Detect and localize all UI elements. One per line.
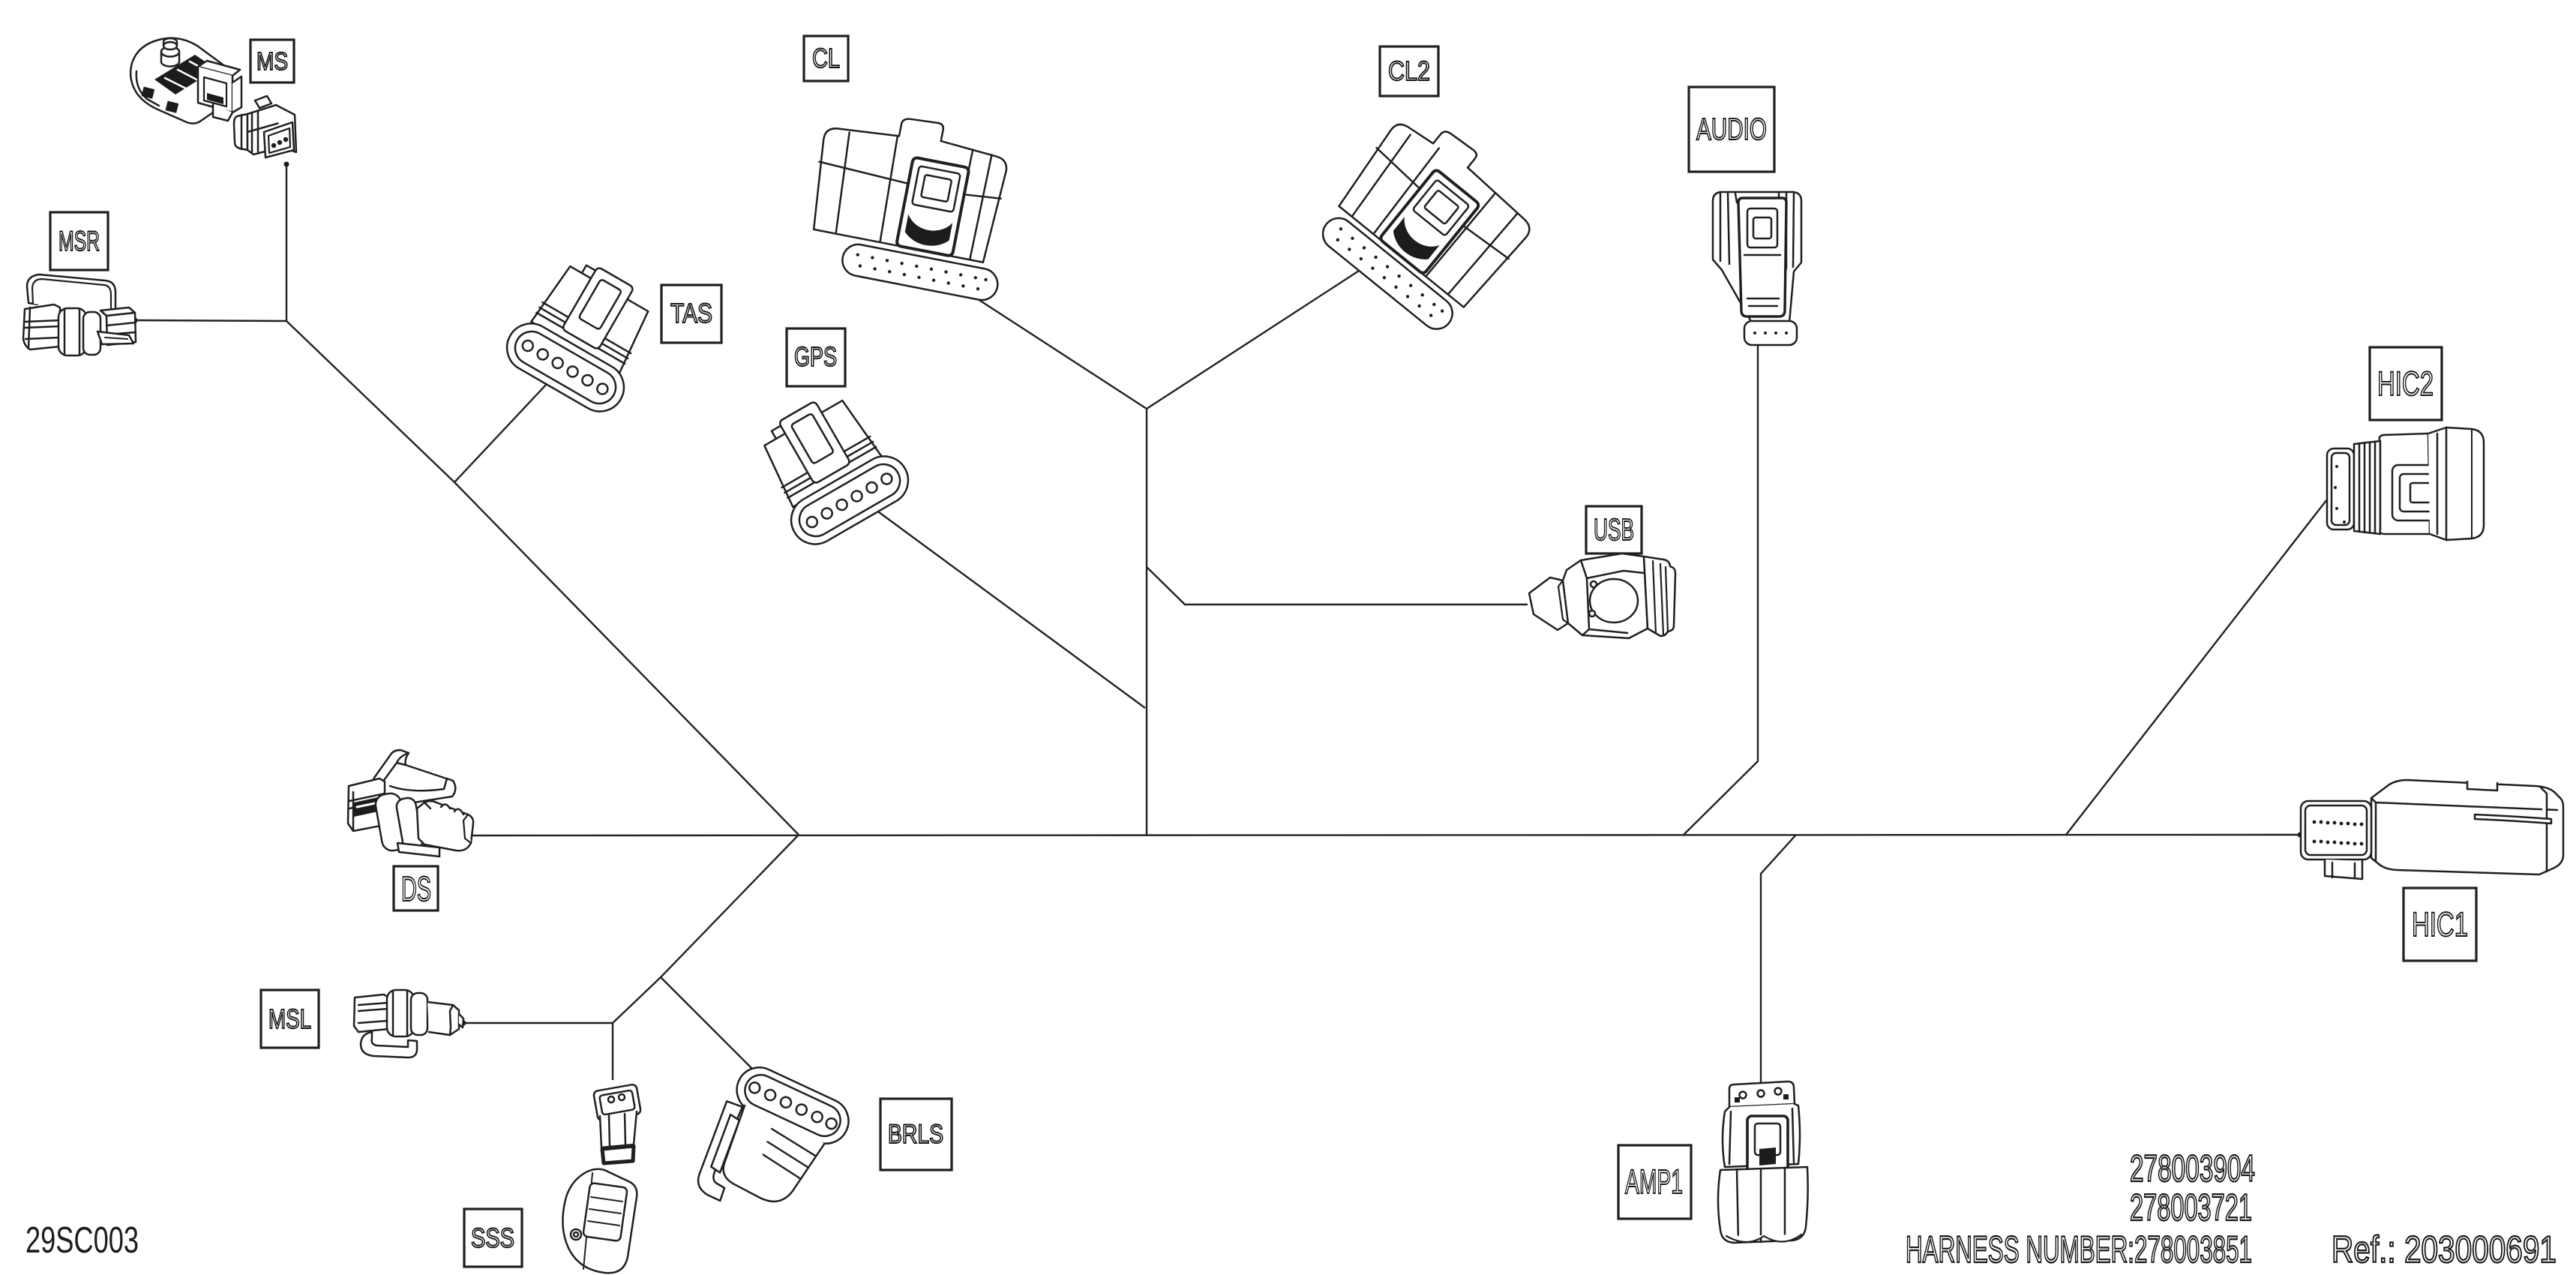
- svg-text:HIC2: HIC2: [2377, 364, 2434, 403]
- svg-text:TAS: TAS: [670, 298, 712, 328]
- svg-text:HIC1: HIC1: [2412, 905, 2468, 943]
- svg-text:SSS: SSS: [471, 1222, 514, 1253]
- svg-text:AUDIO: AUDIO: [1696, 112, 1767, 146]
- svg-text:GPS: GPS: [794, 341, 837, 372]
- svg-text:278003721: 278003721: [2130, 1186, 2252, 1228]
- svg-text:USB: USB: [1594, 512, 1634, 547]
- svg-text:MS: MS: [256, 47, 288, 75]
- svg-text:AMP1: AMP1: [1625, 1162, 1683, 1201]
- svg-text:CL: CL: [812, 43, 840, 73]
- svg-text:DS: DS: [401, 869, 431, 908]
- svg-text:BRLS: BRLS: [888, 1120, 943, 1149]
- svg-text:CL2: CL2: [1388, 55, 1430, 86]
- svg-text:29SC003: 29SC003: [25, 1220, 139, 1261]
- svg-text:HARNESS NUMBER:278003851: HARNESS NUMBER:278003851: [1906, 1228, 2252, 1270]
- svg-text:MSR: MSR: [58, 226, 100, 256]
- svg-text:Ref.: 203000691: Ref.: 203000691: [2332, 1228, 2557, 1270]
- svg-text:278003904: 278003904: [2130, 1147, 2255, 1189]
- svg-text:MSL: MSL: [268, 1003, 311, 1034]
